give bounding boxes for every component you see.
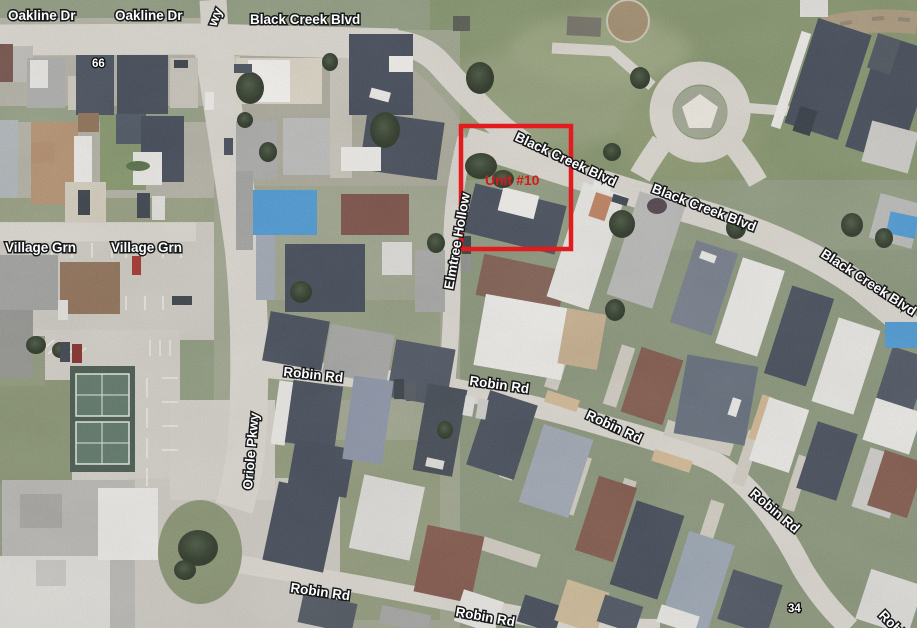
svg-text:66: 66 bbox=[92, 58, 105, 70]
svg-text:Village Grn: Village Grn bbox=[111, 240, 182, 255]
svg-text:Oakline Dr: Oakline Dr bbox=[115, 8, 183, 23]
svg-text:34: 34 bbox=[788, 603, 801, 615]
svg-text:Village Grn: Village Grn bbox=[5, 240, 76, 255]
svg-text:Black Creek Blvd: Black Creek Blvd bbox=[250, 12, 360, 27]
svg-text:Oakline Dr: Oakline Dr bbox=[8, 8, 76, 23]
svg-text:Unit #10: Unit #10 bbox=[485, 172, 540, 188]
